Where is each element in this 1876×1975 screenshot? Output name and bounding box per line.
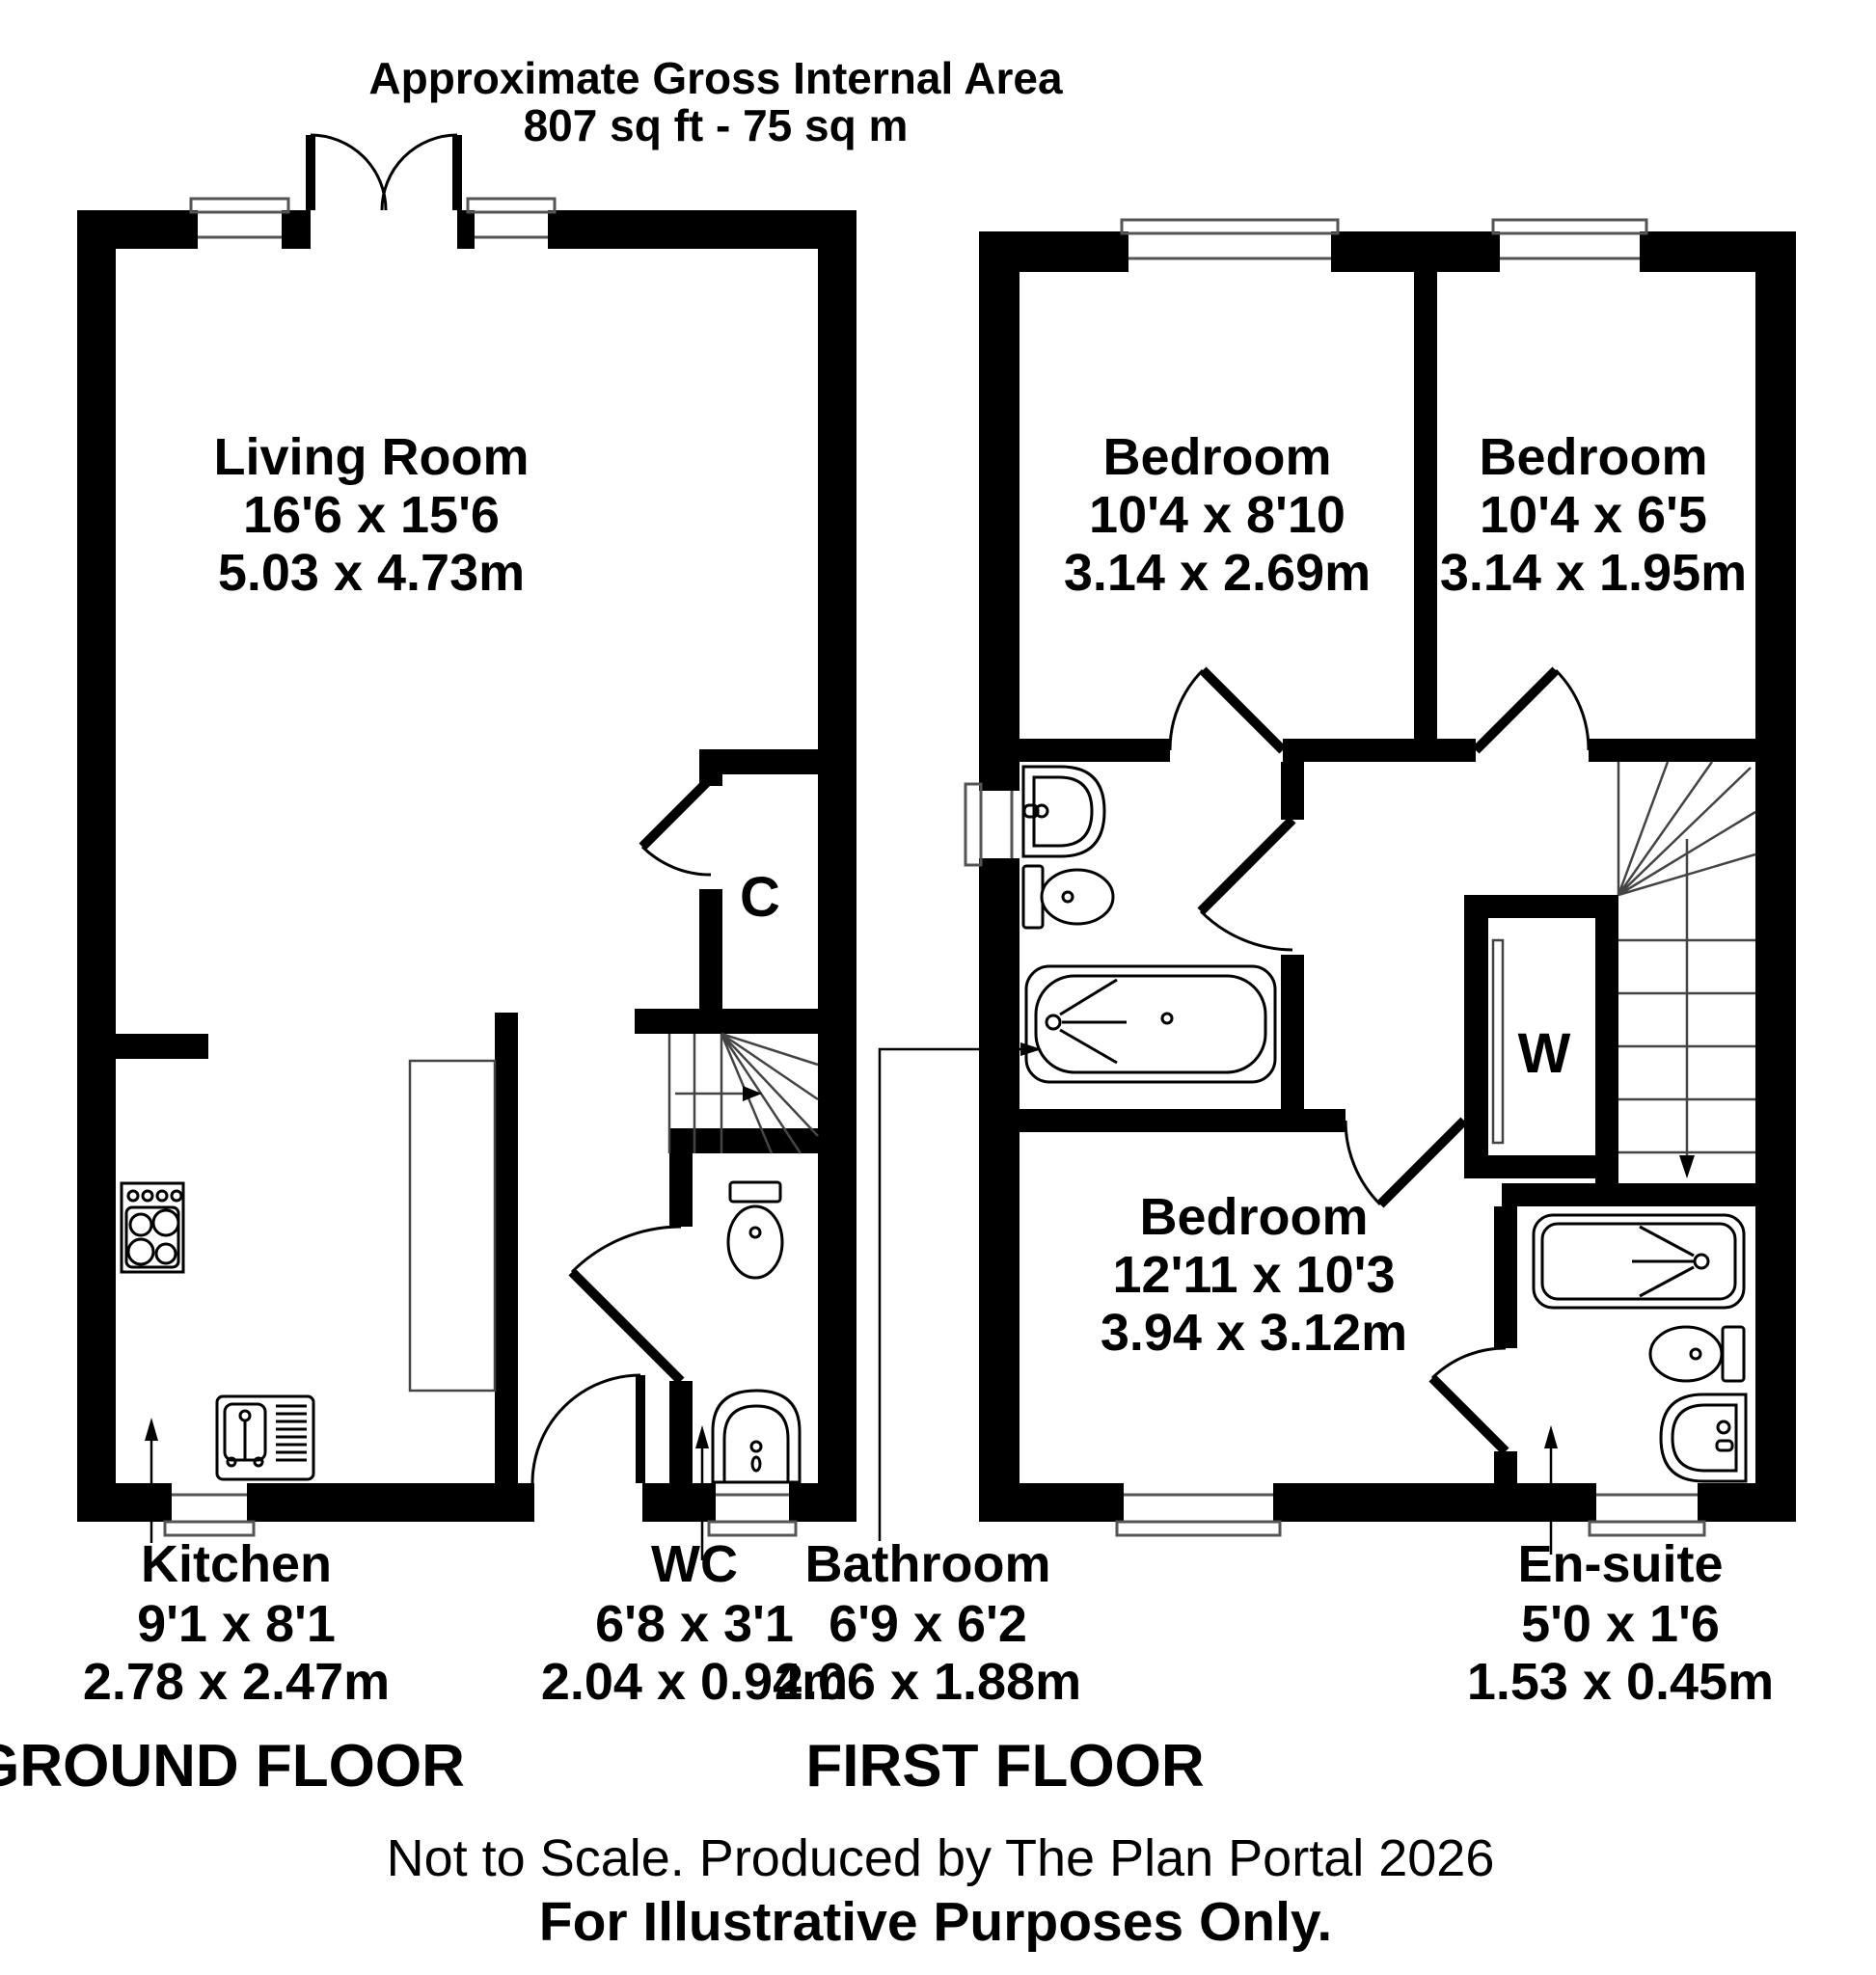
ground-floor-label: GROUND FLOOR	[0, 1733, 465, 1799]
door-arc-icon	[532, 1375, 640, 1483]
door-arc-icon	[642, 778, 711, 875]
window-icon	[1122, 220, 1338, 272]
french-doors-icon	[311, 135, 457, 210]
basin-icon	[713, 1391, 800, 1482]
ensuite-fixtures	[1534, 1215, 1746, 1481]
window-icon	[1590, 1483, 1704, 1535]
shower-bath-icon	[1534, 1215, 1744, 1308]
kitchen-sink-icon	[217, 1396, 313, 1479]
bathroom-metric: 2.06 x 1.88m	[775, 1653, 1081, 1711]
window-icon	[191, 199, 288, 249]
footer-disclaimer: Not to Scale. Produced by The Plan Porta…	[387, 1829, 1495, 1887]
bedroom2-metric: 3.14 x 1.95m	[1440, 544, 1747, 602]
bedroom1-metric: 3.14 x 2.69m	[1064, 544, 1371, 602]
bath-icon	[1026, 966, 1275, 1082]
wardrobe-door-icon	[1493, 940, 1503, 1143]
window-icon	[965, 784, 1020, 865]
basin-icon	[1023, 767, 1104, 856]
first-floor-label: FIRST FLOOR	[805, 1733, 1204, 1799]
kitchen-leader	[145, 1418, 158, 1543]
basin-icon	[1661, 1394, 1746, 1481]
bathroom-fixtures	[1023, 767, 1275, 1082]
bedroom3-name: Bedroom	[1139, 1188, 1368, 1246]
kitchen-imperial: 9'1 x 8'1	[137, 1595, 336, 1653]
cupboard-label: C	[740, 866, 780, 929]
window-icon	[709, 1483, 796, 1535]
bathroom-name: Bathroom	[805, 1535, 1051, 1593]
footer-illustrative: For Illustrative Purposes Only.	[539, 1891, 1333, 1953]
kitchen-name: Kitchen	[141, 1535, 332, 1593]
counter	[410, 1061, 495, 1391]
page-title: Approximate Gross Internal Area	[368, 53, 1063, 103]
door-arc-icon	[1432, 1348, 1506, 1451]
stove-icon	[122, 1183, 183, 1272]
wc-fixtures	[713, 1182, 800, 1482]
window-icon	[1117, 1483, 1280, 1535]
ensuite-imperial: 5'0 x 1'6	[1521, 1595, 1720, 1653]
kitchen-metric: 2.78 x 2.47m	[83, 1653, 390, 1711]
windows	[165, 199, 1704, 1535]
door-arc-icon	[572, 1227, 681, 1381]
window-icon	[1493, 220, 1646, 272]
bedroom1-name: Bedroom	[1102, 428, 1331, 486]
floorplan-canvas: Approximate Gross Internal Area 807 sq f…	[0, 0, 1876, 1975]
window-icon	[468, 199, 555, 249]
page-subtitle: 807 sq ft - 75 sq m	[524, 100, 909, 150]
stairs-down-icon	[1618, 762, 1755, 1178]
bedroom3-metric: 3.94 x 3.12m	[1101, 1304, 1407, 1362]
wc-name: WC	[651, 1535, 738, 1593]
door-arc-icon	[1170, 670, 1283, 750]
ensuite-metric: 1.53 x 0.45m	[1467, 1653, 1774, 1711]
bedroom2-imperial: 10'4 x 6'5	[1480, 486, 1707, 544]
floorplan-page: Approximate Gross Internal Area 807 sq f…	[0, 0, 1876, 1975]
bedroom3-imperial: 12'11 x 10'3	[1113, 1246, 1396, 1304]
wardrobe-label: W	[1518, 1022, 1571, 1085]
toilet-icon	[728, 1182, 782, 1278]
door-arc-icon	[1201, 820, 1292, 950]
toilet-icon	[1650, 1327, 1744, 1381]
bedroom2-name: Bedroom	[1479, 428, 1707, 486]
bathroom-imperial: 6'9 x 6'2	[829, 1595, 1027, 1653]
ensuite-name: En-suite	[1517, 1535, 1723, 1593]
kitchen-fixtures	[122, 1061, 495, 1479]
living-room-imperial: 16'6 x 15'6	[243, 486, 500, 544]
wc-imperial: 6'8 x 3'1	[595, 1595, 794, 1653]
toilet-icon	[1023, 866, 1113, 928]
bedroom1-imperial: 10'4 x 8'10	[1089, 486, 1346, 544]
window-icon	[165, 1483, 254, 1535]
living-room-name: Living Room	[214, 428, 530, 486]
living-room-metric: 5.03 x 4.73m	[218, 544, 525, 602]
door-arc-icon	[1476, 670, 1589, 750]
